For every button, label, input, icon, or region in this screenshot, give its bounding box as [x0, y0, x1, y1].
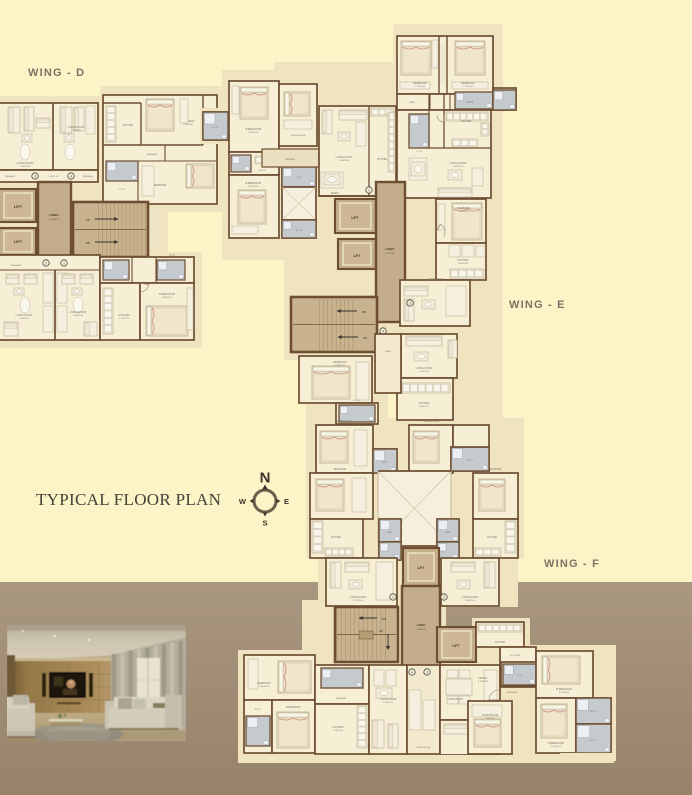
svg-text:2.90X3.30: 2.90X3.30 [183, 124, 194, 126]
svg-text:BEDROOM: BEDROOM [414, 82, 427, 85]
svg-text:2.13X2.18: 2.13X2.18 [119, 318, 130, 320]
svg-text:DN: DN [382, 617, 386, 621]
svg-text:C.TOI: C.TOI [516, 675, 522, 677]
svg-text:UP: UP [86, 218, 90, 222]
svg-text:W.BEDROOM: W.BEDROOM [245, 182, 261, 185]
svg-text:LIVING ROOM: LIVING ROOM [336, 156, 353, 159]
svg-text:PASSAGE: PASSAGE [11, 264, 22, 267]
svg-text:BEDROOM: BEDROOM [258, 682, 271, 685]
svg-text:3.09X2.90: 3.09X2.90 [465, 600, 476, 602]
svg-text:4: 4 [70, 174, 72, 178]
svg-text:DINING: DINING [331, 193, 339, 195]
svg-text:1.55X3.42: 1.55X3.42 [383, 702, 394, 704]
svg-text:W.TOL: W.TOL [382, 462, 389, 464]
svg-text:LIVING ROOM: LIVING ROOM [416, 367, 433, 370]
svg-text:PASS: PASS [445, 531, 451, 534]
svg-text:2.90X3.05: 2.90X3.05 [248, 186, 259, 188]
svg-text:KITCHEN: KITCHEN [458, 259, 469, 262]
svg-text:1: 1 [368, 188, 370, 192]
svg-text:WING - E: WING - E [509, 299, 566, 311]
svg-text:C.TOL: C.TOL [353, 400, 360, 402]
svg-text:LOBBY: LOBBY [385, 247, 395, 251]
svg-text:C.TOL: C.TOL [416, 151, 423, 153]
svg-text:DINING: DINING [479, 677, 488, 680]
svg-text:2.15X4.21: 2.15X4.21 [49, 219, 60, 221]
svg-text:3.60X3.35: 3.60X3.35 [339, 160, 350, 162]
svg-text:DN: DN [362, 310, 366, 314]
svg-text:3.77X2.90: 3.77X2.90 [353, 600, 364, 602]
svg-text:1.70X7.65: 1.70X7.65 [385, 253, 395, 255]
svg-text:BEDROOM: BEDROOM [334, 468, 346, 471]
svg-text:2.70X3.30: 2.70X3.30 [463, 86, 474, 88]
svg-text:W.TOL: W.TOL [467, 460, 474, 462]
svg-text:LIFT: LIFT [14, 239, 23, 244]
svg-text:PASSAGE: PASSAGE [336, 697, 347, 700]
svg-text:LIVING ROOM: LIVING ROOM [70, 311, 87, 314]
svg-text:LIVING ROOM: LIVING ROOM [350, 596, 367, 599]
svg-text:LIVING ROOM: LIVING ROOM [16, 314, 33, 317]
svg-text:M.BEDROOM: M.BEDROOM [159, 293, 175, 296]
svg-text:3: 3 [409, 301, 411, 305]
svg-text:N: N [260, 470, 271, 487]
svg-text:KITCHEN: KITCHEN [377, 159, 387, 161]
svg-text:BEDROOM: BEDROOM [462, 82, 475, 85]
svg-text:1: 1 [392, 595, 394, 599]
svg-text:2.44X3.19: 2.44X3.19 [259, 686, 270, 688]
svg-text:LIFT: LIFT [14, 204, 23, 209]
svg-text:2.99X2.75: 2.99X2.75 [335, 365, 346, 367]
svg-text:W.BEDROOM: W.BEDROOM [286, 707, 301, 709]
svg-text:C.TOL: C.TOL [338, 665, 345, 667]
svg-text:KITCHEN: KITCHEN [331, 537, 341, 539]
svg-text:C.TOL: C.TOL [114, 255, 121, 257]
svg-text:PASSAGE: PASSAGE [285, 158, 296, 161]
svg-text:LIVING ROOM: LIVING ROOM [17, 162, 34, 165]
svg-text:BEDROOM: BEDROOM [154, 184, 166, 187]
svg-text:KITCHEN: KITCHEN [495, 642, 505, 644]
svg-text:3: 3 [426, 670, 428, 674]
svg-text:3.19X2.82: 3.19X2.82 [559, 692, 570, 694]
svg-text:LIVING ROOM: LIVING ROOM [450, 162, 467, 165]
svg-text:WING - D: WING - D [28, 67, 85, 79]
svg-text:WING - F: WING - F [544, 558, 600, 570]
svg-text:C.TOL: C.TOL [119, 189, 126, 191]
svg-text:BEDROOM: BEDROOM [334, 361, 347, 364]
svg-text:W.BEDROOM: W.BEDROOM [336, 420, 351, 423]
svg-text:KITCHEN: KITCHEN [333, 726, 344, 729]
svg-text:4.00X3.20: 4.00X3.20 [419, 371, 430, 373]
svg-text:2.90X3.30: 2.90X3.30 [20, 166, 31, 168]
svg-text:2.90X3.30: 2.90X3.30 [71, 130, 82, 132]
svg-text:4: 4 [411, 670, 413, 674]
svg-text:LIVING ROOM: LIVING ROOM [380, 698, 397, 701]
svg-text:LIVING ROOM: LIVING ROOM [447, 699, 462, 701]
svg-text:M.TOI: M.TOI [467, 102, 474, 104]
svg-text:M.TOI: M.TOI [590, 740, 596, 742]
svg-text:PASS: PASS [409, 101, 415, 104]
svg-text:4: 4 [382, 329, 384, 333]
svg-text:LIFT: LIFT [452, 644, 460, 648]
svg-text:1.20X2.15: 1.20X2.15 [48, 176, 59, 178]
svg-text:PASSAGE: PASSAGE [507, 691, 518, 694]
svg-text:PASSAGE: PASSAGE [83, 175, 94, 178]
svg-text:LOBBY: LOBBY [416, 623, 425, 627]
svg-text:LIVING ROOM: LIVING ROOM [416, 747, 431, 749]
svg-text:KITCHEN: KITCHEN [123, 125, 133, 127]
svg-text:3: 3 [34, 174, 36, 178]
svg-text:2.74X3.05: 2.74X3.05 [551, 746, 562, 748]
svg-text:DN: DN [86, 241, 90, 245]
svg-text:KITCHEN: KITCHEN [487, 537, 497, 539]
svg-text:BEDROOM: BEDROOM [458, 207, 471, 210]
svg-text:KITCHEN: KITCHEN [510, 655, 520, 657]
svg-text:UP: UP [363, 336, 367, 340]
svg-text:KITCHEN: KITCHEN [419, 402, 430, 405]
svg-text:W.TOI: W.TOI [296, 230, 303, 232]
svg-text:2.70X3.30: 2.70X3.30 [415, 86, 426, 88]
svg-text:PASSAGE: PASSAGE [147, 153, 158, 156]
svg-text:E: E [284, 497, 289, 506]
svg-text:S: S [262, 519, 267, 528]
svg-text:2: 2 [45, 261, 47, 265]
svg-text:C.TOI: C.TOI [296, 177, 302, 179]
svg-text:UP: UP [379, 629, 383, 633]
svg-text:2.30X4.75: 2.30X4.75 [416, 629, 426, 631]
svg-text:KITCHEN: KITCHEN [461, 120, 472, 123]
svg-text:LIFT: LIFT [351, 216, 359, 220]
svg-text:DRESSROOM: DRESSROOM [291, 135, 306, 137]
svg-text:M.TOI: M.TOI [590, 711, 596, 713]
svg-text:2.38X3.05: 2.38X3.05 [485, 718, 496, 720]
svg-text:W.TOL: W.TOL [212, 127, 219, 129]
svg-text:BEDROOM: BEDROOM [489, 468, 501, 471]
svg-text:LIFT: LIFT [417, 566, 425, 570]
svg-text:1.79X2.05: 1.79X2.05 [478, 681, 489, 683]
svg-text:3.05X3.35: 3.05X3.35 [459, 211, 470, 213]
svg-text:LIVING ROOM: LIVING ROOM [462, 596, 479, 599]
svg-text:1: 1 [63, 261, 65, 265]
svg-text:2.90X4.25: 2.90X4.25 [19, 318, 30, 320]
svg-text:2.90X3.02: 2.90X3.02 [162, 297, 173, 299]
svg-text:KITCH: KITCH [259, 170, 266, 172]
svg-text:PASSAGE: PASSAGE [5, 175, 16, 178]
svg-text:2.90X3.05: 2.90X3.05 [248, 132, 259, 134]
svg-text:2.40X2.35: 2.40X2.35 [458, 263, 469, 265]
svg-text:LIVING ROOM: LIVING ROOM [428, 278, 444, 281]
svg-text:2: 2 [443, 595, 445, 599]
svg-text:W: W [239, 497, 247, 506]
svg-text:KITCHEN: KITCHEN [119, 314, 130, 317]
svg-text:4.03X1.25: 4.03X1.25 [419, 406, 430, 408]
svg-text:TYPICAL FLOOR PLAN: TYPICAL FLOOR PLAN [36, 490, 221, 509]
svg-text:W.BEDROOM: W.BEDROOM [245, 128, 261, 131]
svg-text:W.BEDROOM: W.BEDROOM [548, 742, 564, 745]
svg-text:M.BEDROOM: M.BEDROOM [556, 688, 572, 691]
svg-text:LIVING ROOM: LIVING ROOM [68, 126, 85, 129]
svg-text:M.TOI: M.TOI [169, 255, 175, 257]
svg-text:2.13X2.48: 2.13X2.48 [333, 730, 344, 732]
svg-text:4.00X3.95: 4.00X3.95 [453, 166, 464, 168]
svg-text:2.90X4.25: 2.90X4.25 [73, 315, 84, 317]
svg-text:PASS: PASS [385, 350, 391, 353]
svg-text:M.BEDROOM: M.BEDROOM [423, 420, 438, 423]
svg-text:LOBBY: LOBBY [49, 213, 59, 217]
svg-text:LIFT: LIFT [353, 254, 361, 258]
svg-text:STUDYROOM: STUDYROOM [482, 714, 498, 717]
svg-text:W.TOL: W.TOL [255, 709, 262, 711]
svg-text:BATH: BATH [387, 531, 393, 534]
